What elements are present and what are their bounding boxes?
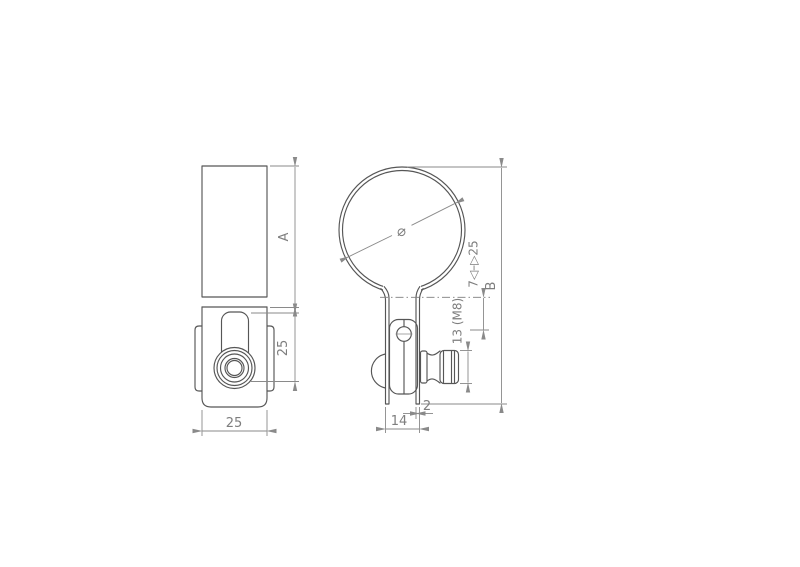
knurled-nut <box>440 351 459 384</box>
clamp-jaw <box>371 320 417 395</box>
dim-diameter-label: ⌀ <box>397 222 406 240</box>
tube-body <box>202 166 267 307</box>
washer <box>421 351 428 383</box>
front-view: A 25 25 <box>195 166 299 436</box>
dimension-25-vertical: 25 <box>251 313 299 382</box>
pressure-pad <box>371 354 385 388</box>
side-view: ⌀ 7◁–▷25 B 13 (M8) 2 <box>339 167 507 433</box>
screw-neck <box>427 351 440 355</box>
dimension-25-horizontal: 25 <box>202 410 267 436</box>
dim-25v-label: 25 <box>276 340 291 357</box>
dim-range-label: 7◁–▷25 <box>467 240 481 287</box>
dim-b-label: B <box>484 282 499 291</box>
technical-drawing: A 25 25 <box>0 0 800 567</box>
dim-2-label: 2 <box>423 399 431 414</box>
clamp-nut-front <box>214 348 255 389</box>
left-tab <box>195 326 202 391</box>
dim-25h-label: 25 <box>226 416 243 431</box>
thumb-screw <box>421 351 459 384</box>
dimension-a: A <box>270 166 299 308</box>
dim-a-label: A <box>277 232 292 241</box>
dimension-14: 14 <box>386 407 420 433</box>
dim-14-label: 14 <box>391 414 408 429</box>
drawing-canvas: A 25 25 <box>0 0 800 567</box>
dim-nut-label: 13 (M8) <box>451 298 465 344</box>
